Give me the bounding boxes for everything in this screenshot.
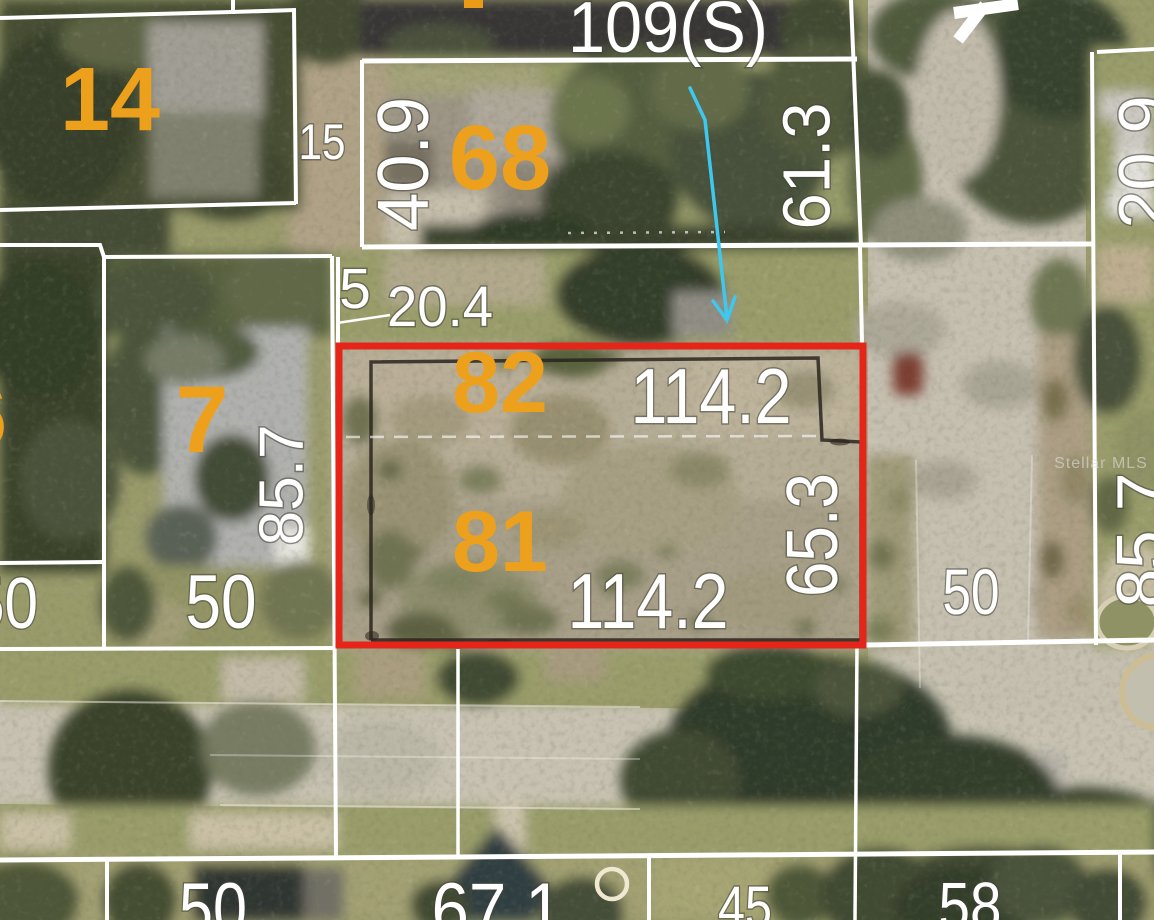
svg-text:81: 81 xyxy=(452,494,548,590)
svg-text:20.9: 20.9 xyxy=(1105,96,1154,229)
svg-text:85.7: 85.7 xyxy=(247,425,316,546)
svg-text:58: 58 xyxy=(939,869,1002,920)
svg-text:6: 6 xyxy=(0,367,7,467)
svg-text:50: 50 xyxy=(179,869,247,920)
svg-text:50: 50 xyxy=(943,556,1000,628)
svg-text:50: 50 xyxy=(0,564,38,644)
svg-text:65.3: 65.3 xyxy=(773,473,853,597)
svg-text:114.2: 114.2 xyxy=(631,352,792,440)
svg-text:67.1: 67.1 xyxy=(432,868,563,920)
svg-text:5: 5 xyxy=(339,257,371,321)
svg-text:Stellar MLS: Stellar MLS xyxy=(1054,455,1148,472)
svg-text:114.2: 114.2 xyxy=(568,557,729,645)
svg-text:15: 15 xyxy=(299,114,346,170)
svg-text:50: 50 xyxy=(186,560,257,645)
svg-text:40.9: 40.9 xyxy=(364,97,444,231)
svg-text:7: 7 xyxy=(176,367,229,473)
svg-text:14: 14 xyxy=(60,50,160,150)
svg-text:85.7: 85.7 xyxy=(1103,473,1154,608)
svg-text:20.4: 20.4 xyxy=(387,275,493,339)
svg-text:82: 82 xyxy=(452,335,548,431)
svg-text:68: 68 xyxy=(449,107,551,209)
svg-text:109(S): 109(S) xyxy=(568,0,768,68)
svg-text:45: 45 xyxy=(718,875,772,920)
svg-text:61.3: 61.3 xyxy=(770,103,845,230)
